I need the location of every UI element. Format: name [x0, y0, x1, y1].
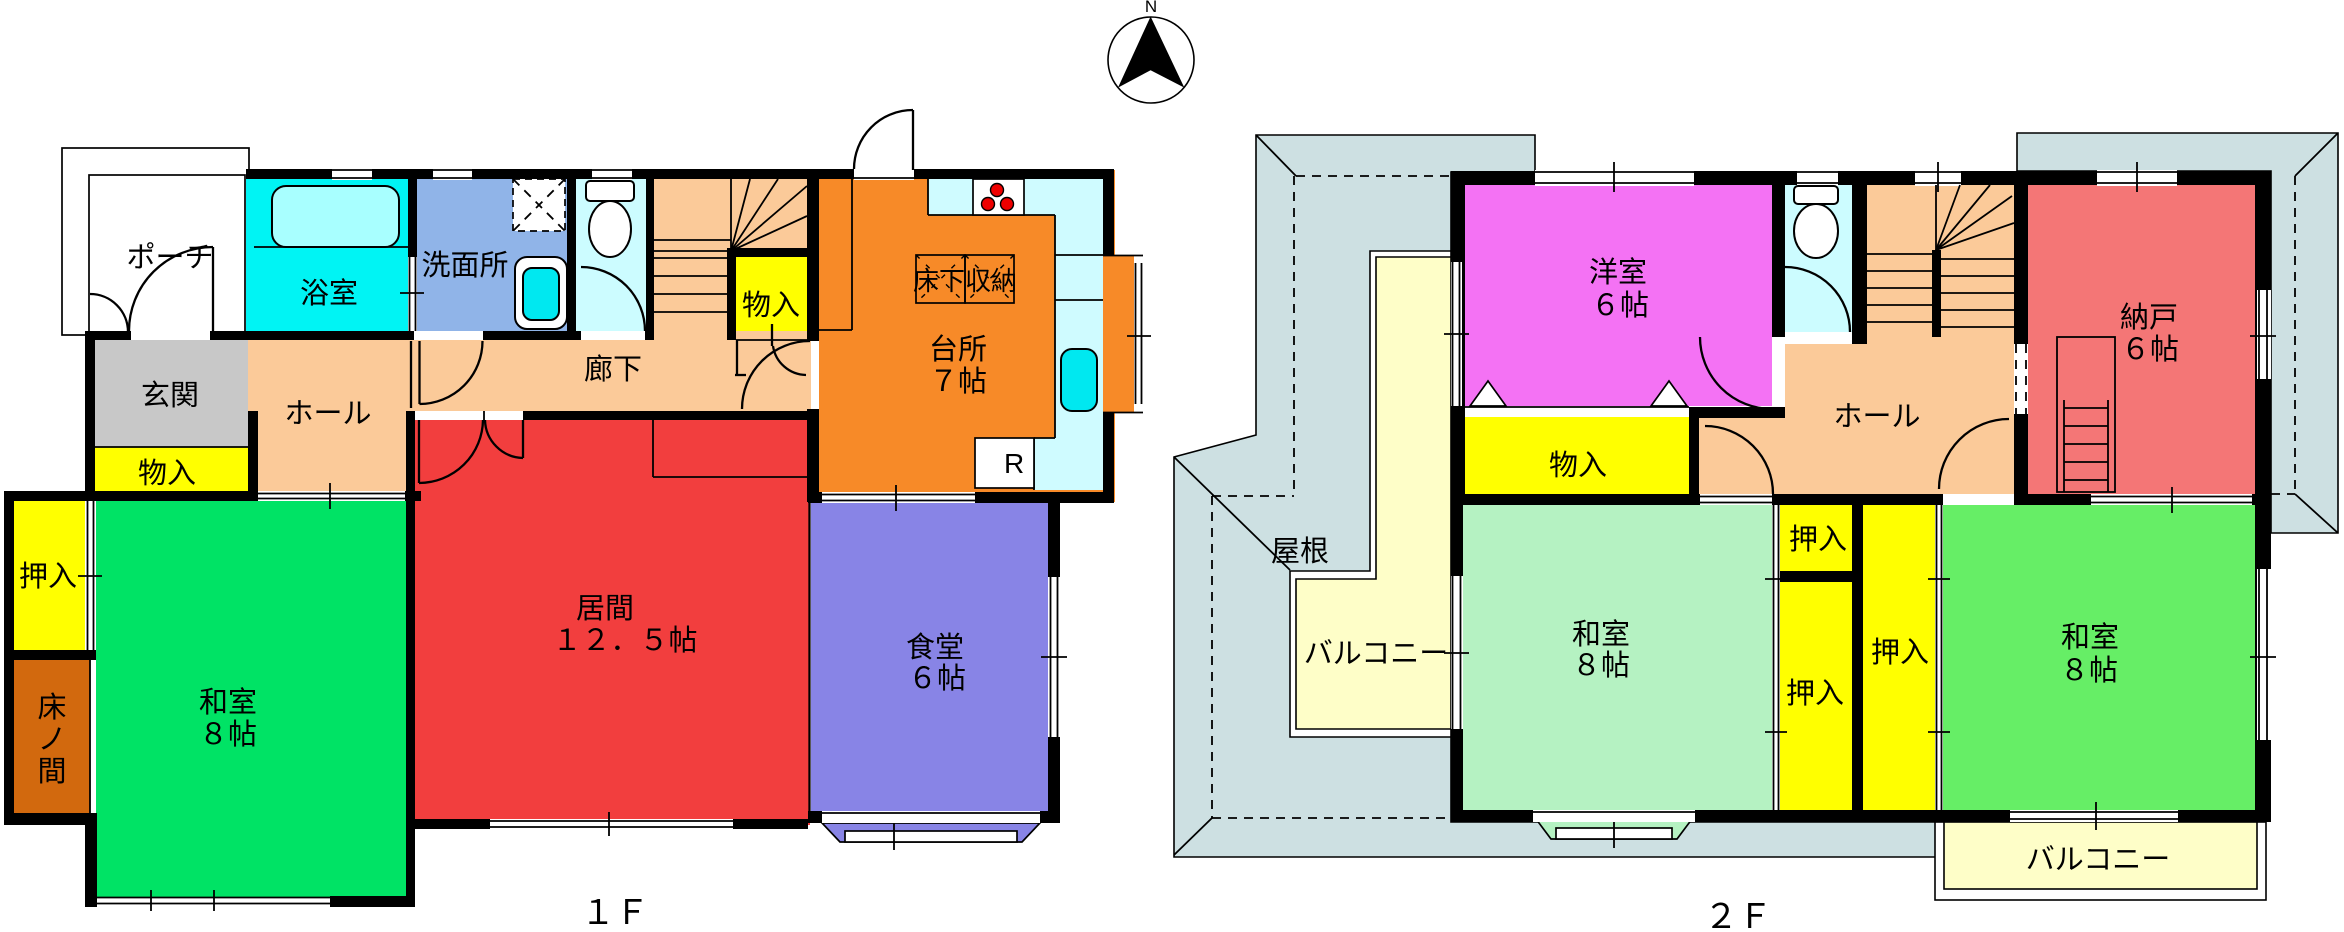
svg-text:納戸: 納戸	[2120, 301, 2178, 334]
svg-text:押入: 押入	[1789, 523, 1847, 556]
svg-text:押入: 押入	[1786, 677, 1844, 710]
svg-text:ホール: ホール	[1833, 401, 1920, 433]
svg-text:８帖: ８帖	[1572, 649, 1630, 682]
svg-text:ノ: ノ	[37, 724, 66, 756]
svg-text:押入: 押入	[19, 560, 77, 593]
svg-text:１２．５帖: １２．５帖	[552, 624, 697, 657]
svg-text:６帖: ６帖	[908, 662, 966, 695]
svg-text:ホール: ホール	[284, 398, 371, 430]
svg-text:R: R	[1004, 448, 1024, 479]
svg-text:ポーチ: ポーチ	[126, 241, 213, 274]
svg-text:居間: 居間	[576, 593, 634, 625]
svg-text:床: 床	[37, 691, 66, 724]
svg-text:廊下: 廊下	[584, 353, 642, 386]
svg-text:床下収納: 床下収納	[913, 266, 1017, 296]
svg-text:和室: 和室	[2061, 621, 2119, 654]
svg-text:８帖: ８帖	[199, 718, 257, 751]
svg-text:屋根: 屋根	[1271, 535, 1329, 568]
svg-text:８帖: ８帖	[2060, 654, 2118, 687]
svg-text:和室: 和室	[1572, 618, 1630, 651]
svg-text:２Ｆ: ２Ｆ	[1704, 898, 1772, 932]
svg-text:押入: 押入	[1871, 636, 1929, 669]
svg-text:６帖: ６帖	[1591, 289, 1649, 322]
svg-text:洗面所: 洗面所	[421, 249, 508, 282]
svg-text:物入: 物入	[742, 289, 800, 322]
svg-text:物入: 物入	[1549, 449, 1607, 482]
svg-text:台所: 台所	[929, 333, 987, 366]
svg-text:１Ｆ: １Ｆ	[581, 894, 649, 932]
svg-text:バルコニー: バルコニー	[1304, 638, 1448, 670]
svg-text:物入: 物入	[138, 457, 196, 490]
svg-text:７帖: ７帖	[929, 365, 987, 398]
svg-text:浴室: 浴室	[300, 277, 358, 310]
svg-text:玄関: 玄関	[141, 379, 199, 412]
svg-text:間: 間	[37, 756, 66, 788]
svg-text:６帖: ６帖	[2121, 333, 2179, 366]
svg-text:食堂: 食堂	[906, 631, 964, 664]
svg-text:和室: 和室	[199, 686, 257, 719]
svg-text:洋室: 洋室	[1589, 256, 1647, 289]
svg-text:N: N	[1145, 0, 1157, 16]
svg-text:バルコニー: バルコニー	[2026, 844, 2170, 876]
